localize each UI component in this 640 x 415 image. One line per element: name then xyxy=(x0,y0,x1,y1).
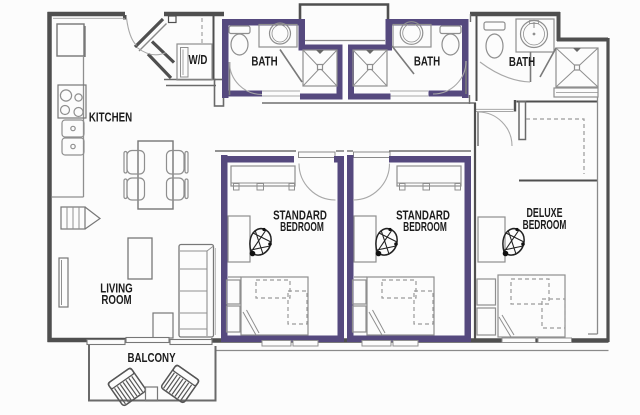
svg-text:ROOM: ROOM xyxy=(101,294,131,307)
svg-text:KITCHEN: KITCHEN xyxy=(89,111,132,124)
svg-text:BEDROOM: BEDROOM xyxy=(280,220,324,234)
svg-text:W/D: W/D xyxy=(189,54,208,67)
svg-text:BALCONY: BALCONY xyxy=(127,352,176,365)
svg-text:BATH: BATH xyxy=(414,55,440,68)
svg-text:BEDROOM: BEDROOM xyxy=(523,218,567,232)
svg-text:BEDROOM: BEDROOM xyxy=(403,220,447,234)
svg-text:BATH: BATH xyxy=(251,55,277,68)
svg-text:BATH: BATH xyxy=(509,56,535,69)
